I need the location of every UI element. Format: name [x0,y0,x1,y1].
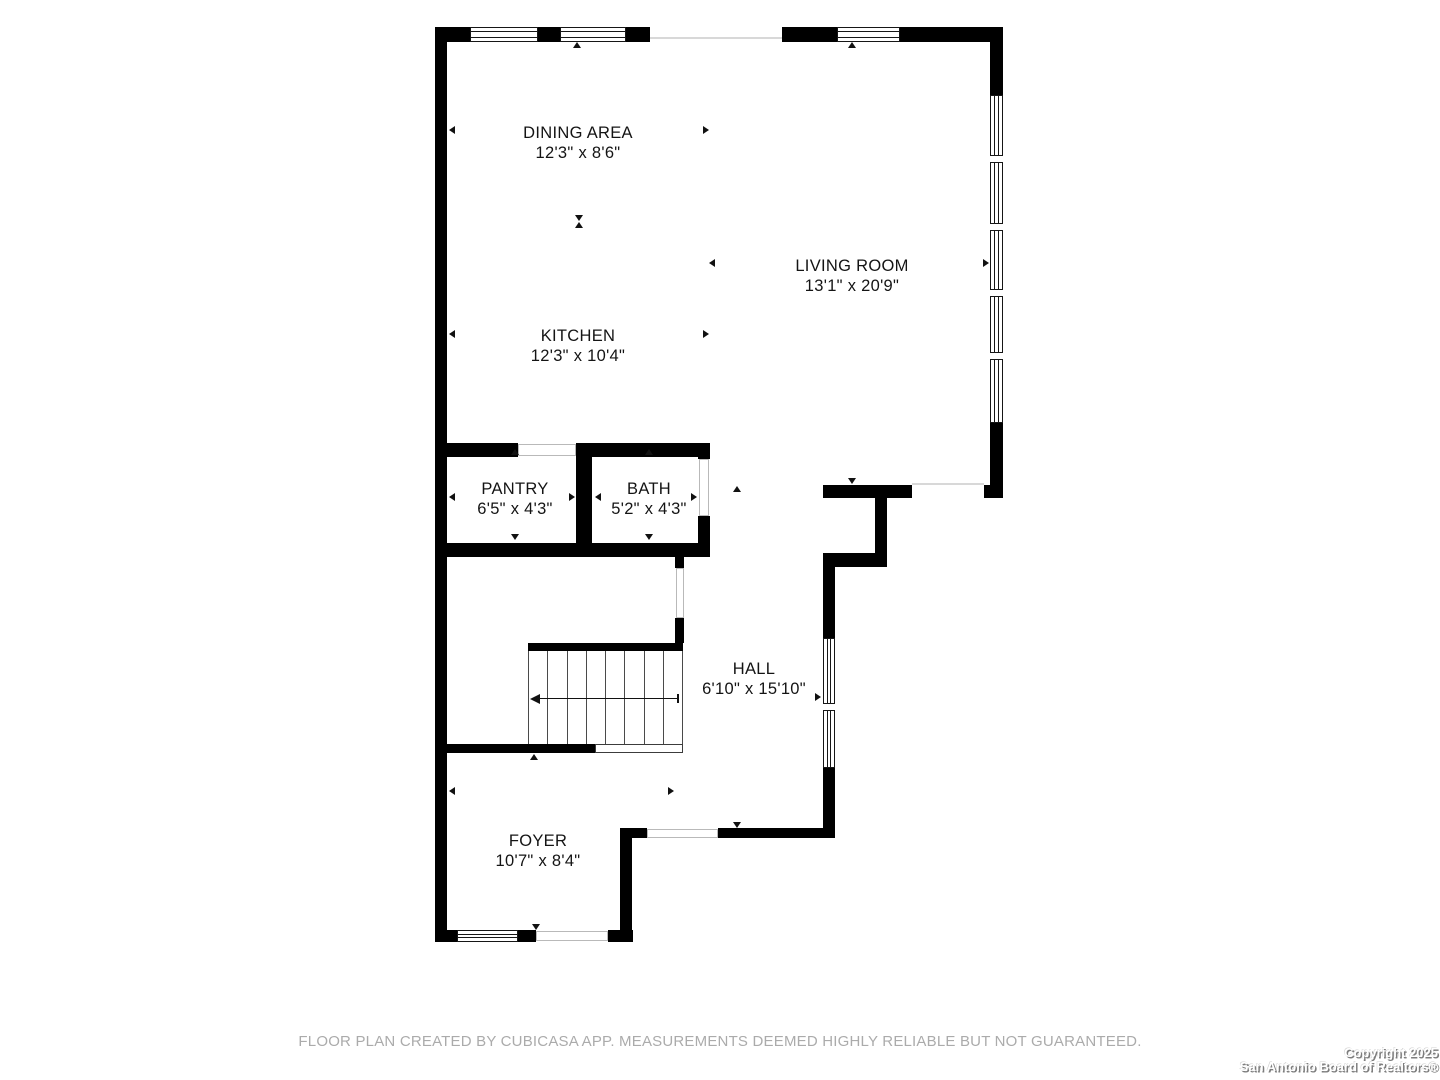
dimension-marker-down [575,215,583,221]
room-dimensions: 6'10" x 15'10" [702,679,806,699]
wall-bath-right-lower [698,516,710,545]
room-name: FOYER [496,831,581,851]
opening-pantry-door [518,444,576,456]
dimension-marker-up [733,486,741,492]
opening-bath-door [699,459,709,516]
wall-bath-right-upper [698,443,710,459]
disclaimer-text: FLOOR PLAN CREATED BY CUBICASA APP. MEAS… [0,1033,1440,1050]
window-dining-2 [560,27,626,42]
room-label-living: LIVING ROOM13'1" x 20'9" [795,256,908,296]
floorplan-page: DINING AREA12'3" x 8'6"LIVING ROOM13'1" … [0,0,1440,1080]
opening-front-door [536,931,608,941]
room-dimensions: 5'2" x 4'3" [611,499,686,519]
dimension-marker-down [532,924,540,930]
wall-bottom-mid [518,930,536,942]
dimension-marker-right [703,330,709,338]
wall-right-lower [990,423,1003,498]
dimension-marker-right [703,126,709,134]
wall-pantry-bath-bottom [447,543,710,557]
dimension-marker-right [815,693,821,701]
room-dimensions: 12'3" x 10'4" [531,346,625,366]
dimension-marker-up [573,42,581,48]
dimension-marker-left [449,787,455,795]
stair-arrow-end-tick [677,694,679,703]
room-name: HALL [702,659,806,679]
dimension-marker-down [511,534,519,540]
window-glass [470,31,538,38]
room-label-pantry: PANTRY6'5" x 4'3" [477,479,552,519]
copyright-line2: San Antonio Board of Realtors® [1240,1060,1438,1074]
opening-living-hall [912,483,984,485]
wall-left-exterior [435,27,447,942]
stair-tread-line [528,651,529,744]
dimension-marker-left [595,493,601,501]
room-name: DINING AREA [523,123,633,143]
copyright-text: Copyright 2025 San Antonio Board of Real… [1240,1046,1438,1074]
window-mullion [990,223,1003,231]
wall-foyer-top-stub [620,828,647,838]
wall-stairs-right-upper [675,618,684,643]
dimension-marker-up [848,42,856,48]
window-dining-1 [470,27,538,42]
wall-hall-right-upper [823,567,835,638]
room-label-dining: DINING AREA12'3" x 8'6" [523,123,633,163]
room-name: BATH [611,479,686,499]
wall-under-bath-stub [675,557,684,568]
window-glass [837,31,900,38]
dimension-marker-up [530,754,538,760]
dimension-marker-down [645,534,653,540]
window-mullion [990,289,1003,297]
wall-bottom-left [435,930,457,942]
room-label-foyer: FOYER10'7" x 8'4" [496,831,581,871]
wall-closet-right [875,498,887,553]
window-glass [457,934,518,938]
wall-stairs-top [528,643,683,651]
opening-dining-top [650,37,782,39]
room-label-bath: BATH5'2" x 4'3" [611,479,686,519]
room-label-hall: HALL6'10" x 15'10" [702,659,806,699]
room-dimensions: 13'1" x 20'9" [795,276,908,296]
stair-tread-line [682,651,683,744]
room-name: LIVING ROOM [795,256,908,276]
opening-under-stairs-door [676,568,684,618]
wall-right-foot [984,485,990,498]
wall-bottom-right [608,930,633,942]
dimension-marker-left [449,126,455,134]
dimension-marker-right [569,493,575,501]
wall-pantry-top [447,443,518,457]
wall-foyer-right [620,838,632,942]
wall-closet-bottom [823,553,887,567]
window-foyer [457,930,518,942]
wall-bath-top [576,443,710,457]
dimension-marker-left [709,259,715,267]
wall-hall-top [823,485,912,498]
opening-hall-foyer [647,829,718,838]
dimension-marker-up [645,449,653,455]
window-mullion [990,352,1003,360]
window-living-top [837,27,900,42]
room-label-kitchen: KITCHEN12'3" x 10'4" [531,326,625,366]
wall-pantry-bath-divider [576,443,592,557]
dimension-marker-up [511,449,519,455]
room-dimensions: 12'3" x 8'6" [523,143,633,163]
dimension-marker-right [983,259,989,267]
room-name: PANTRY [477,479,552,499]
stair-direction-arrowhead [530,694,540,704]
wall-hall-bottom [718,828,835,838]
window-glass [994,95,999,423]
dimension-marker-right [691,493,697,501]
dimension-marker-down [848,478,856,484]
room-dimensions: 6'5" x 4'3" [477,499,552,519]
dimension-marker-left [449,330,455,338]
room-name: KITCHEN [531,326,625,346]
window-living-right [990,95,1003,423]
window-hall [823,638,835,768]
dimension-marker-right [668,787,674,795]
room-dimensions: 10'7" x 8'4" [496,851,581,871]
wall-right-upper [990,27,1003,95]
stair-landing [595,744,683,753]
dimension-marker-down [733,822,741,828]
dimension-marker-up [575,222,583,228]
wall-stairs-bottom [447,744,595,753]
window-mullion [823,703,835,711]
window-glass [560,31,626,38]
dimension-marker-left [449,493,455,501]
window-mullion [990,155,1003,163]
copyright-line1: Copyright 2025 [1240,1046,1438,1060]
stair-direction-arrow-line [538,698,678,699]
